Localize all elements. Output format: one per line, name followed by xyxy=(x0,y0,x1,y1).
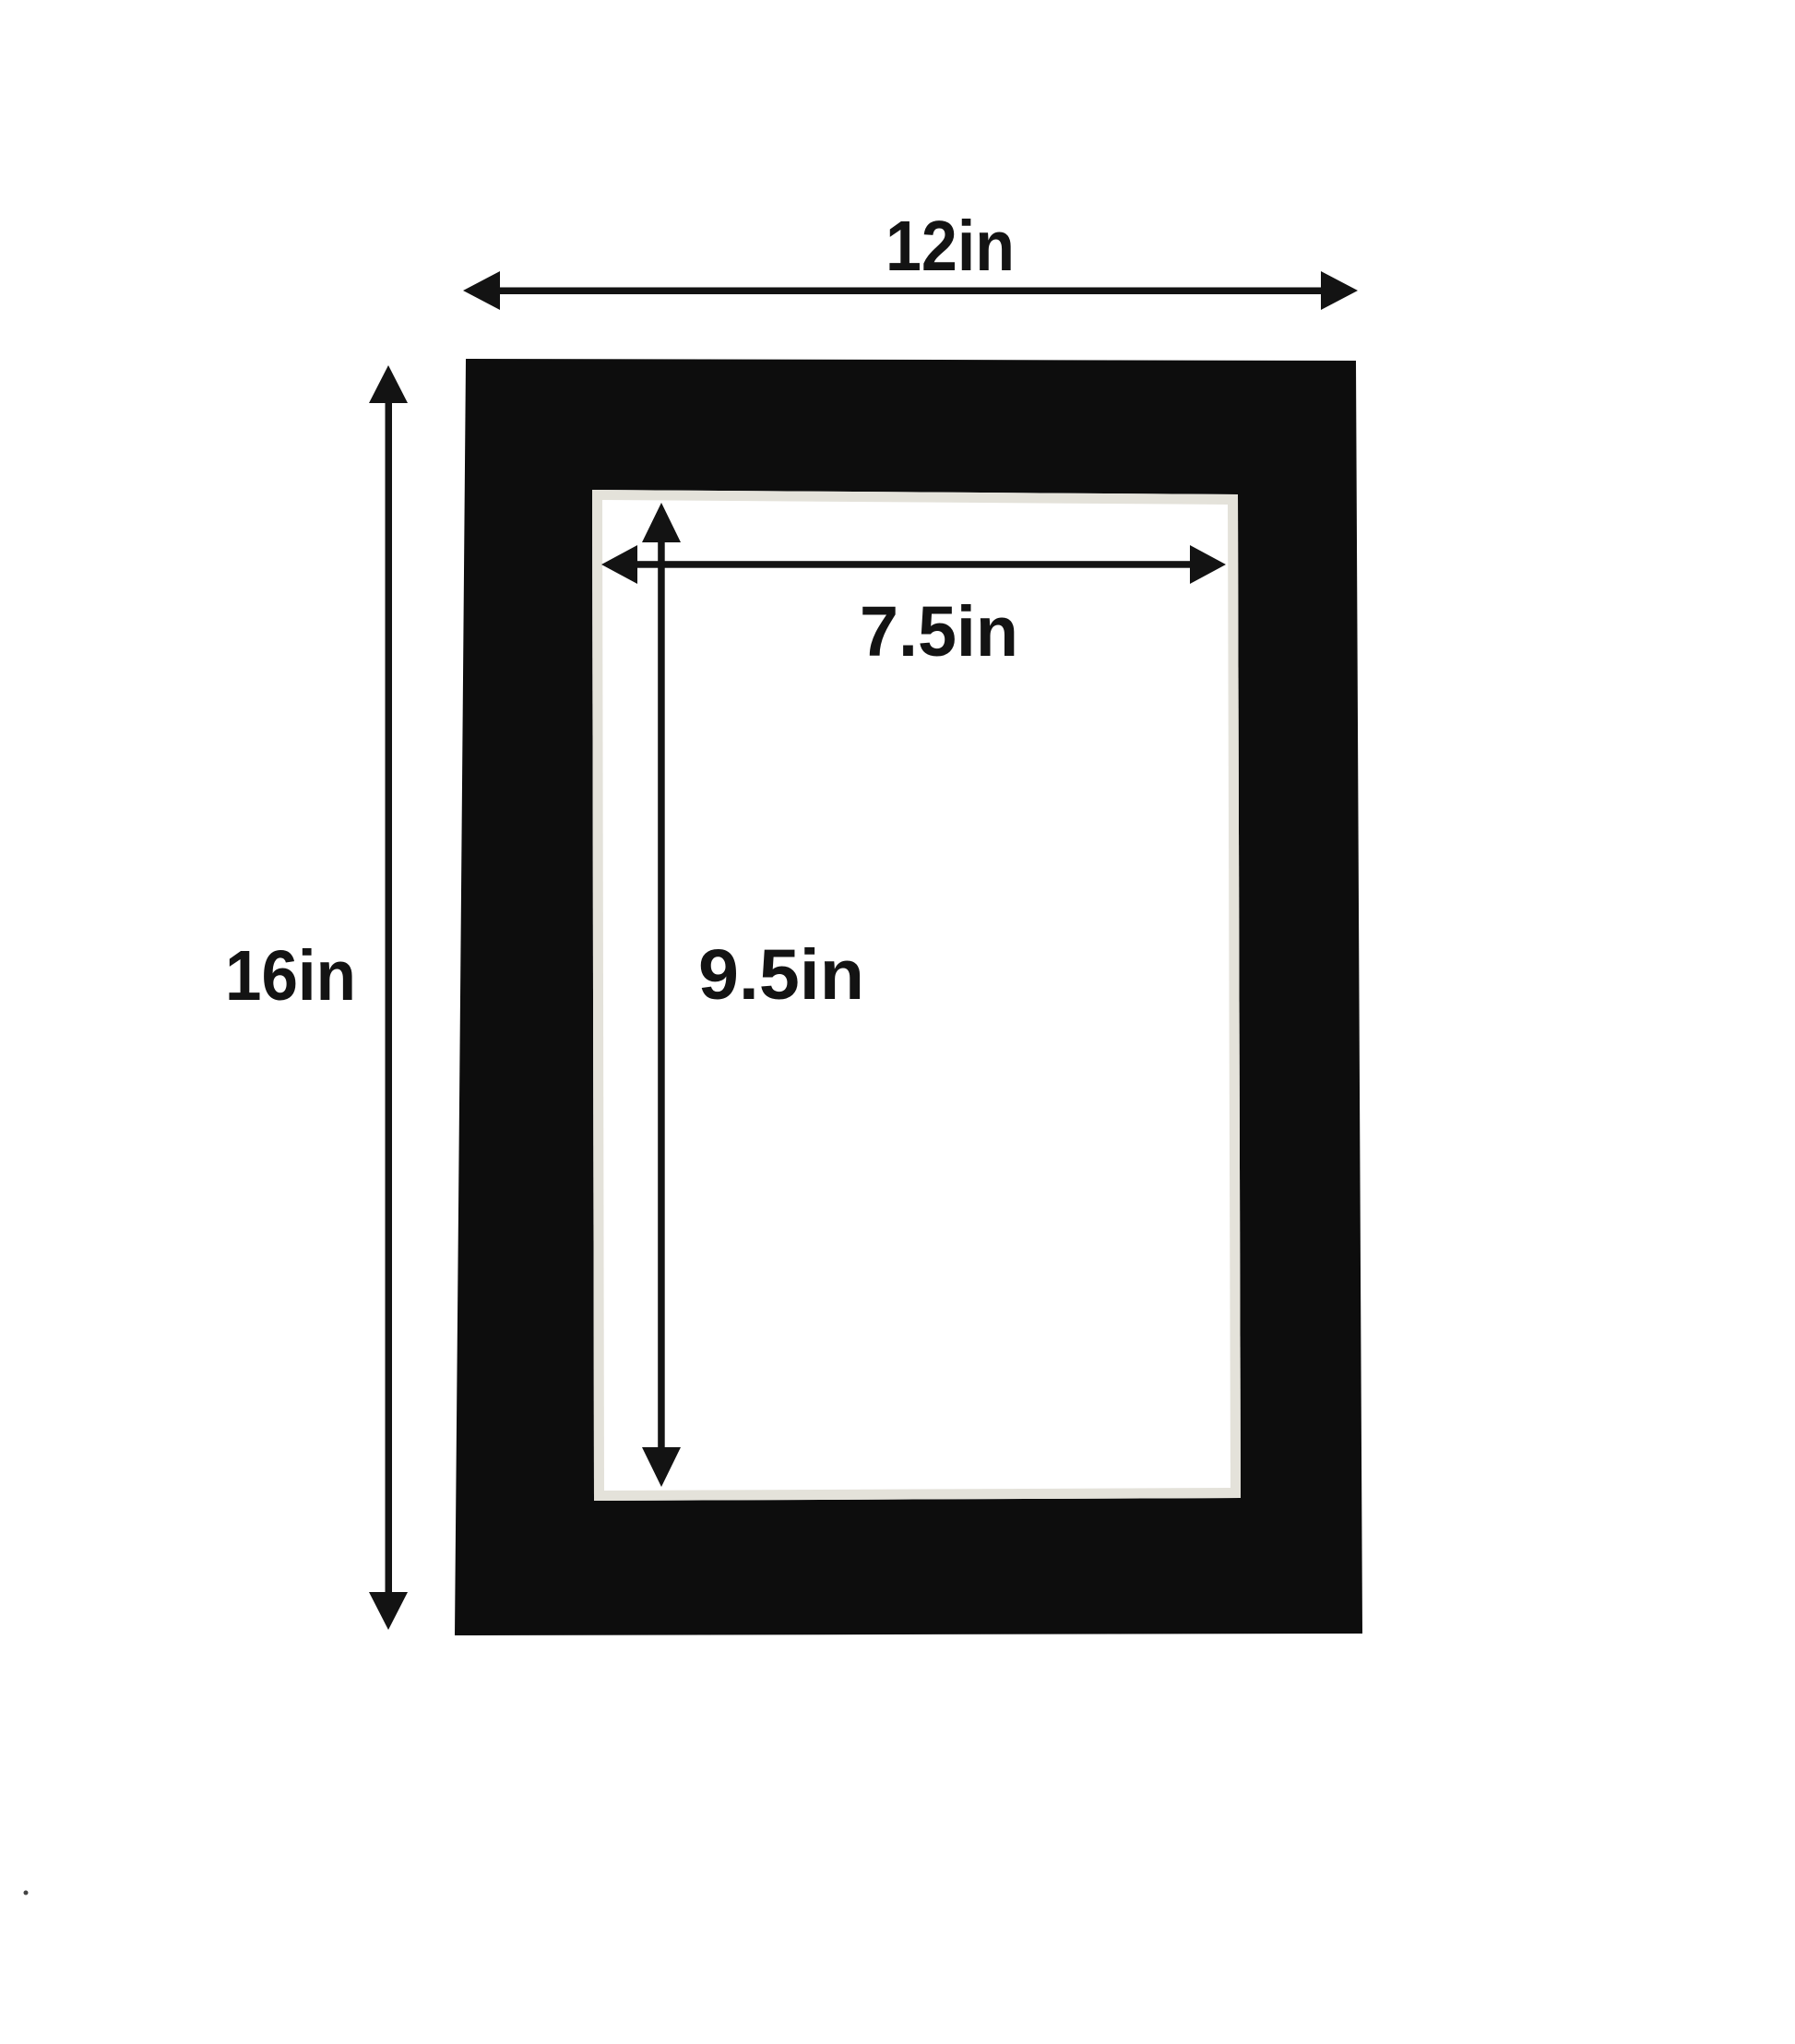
svg-text:7.5in: 7.5in xyxy=(860,592,1018,671)
svg-text:16in: 16in xyxy=(225,936,356,1016)
svg-text:12in: 12in xyxy=(886,207,1015,286)
svg-text:9.5in: 9.5in xyxy=(698,935,864,1015)
